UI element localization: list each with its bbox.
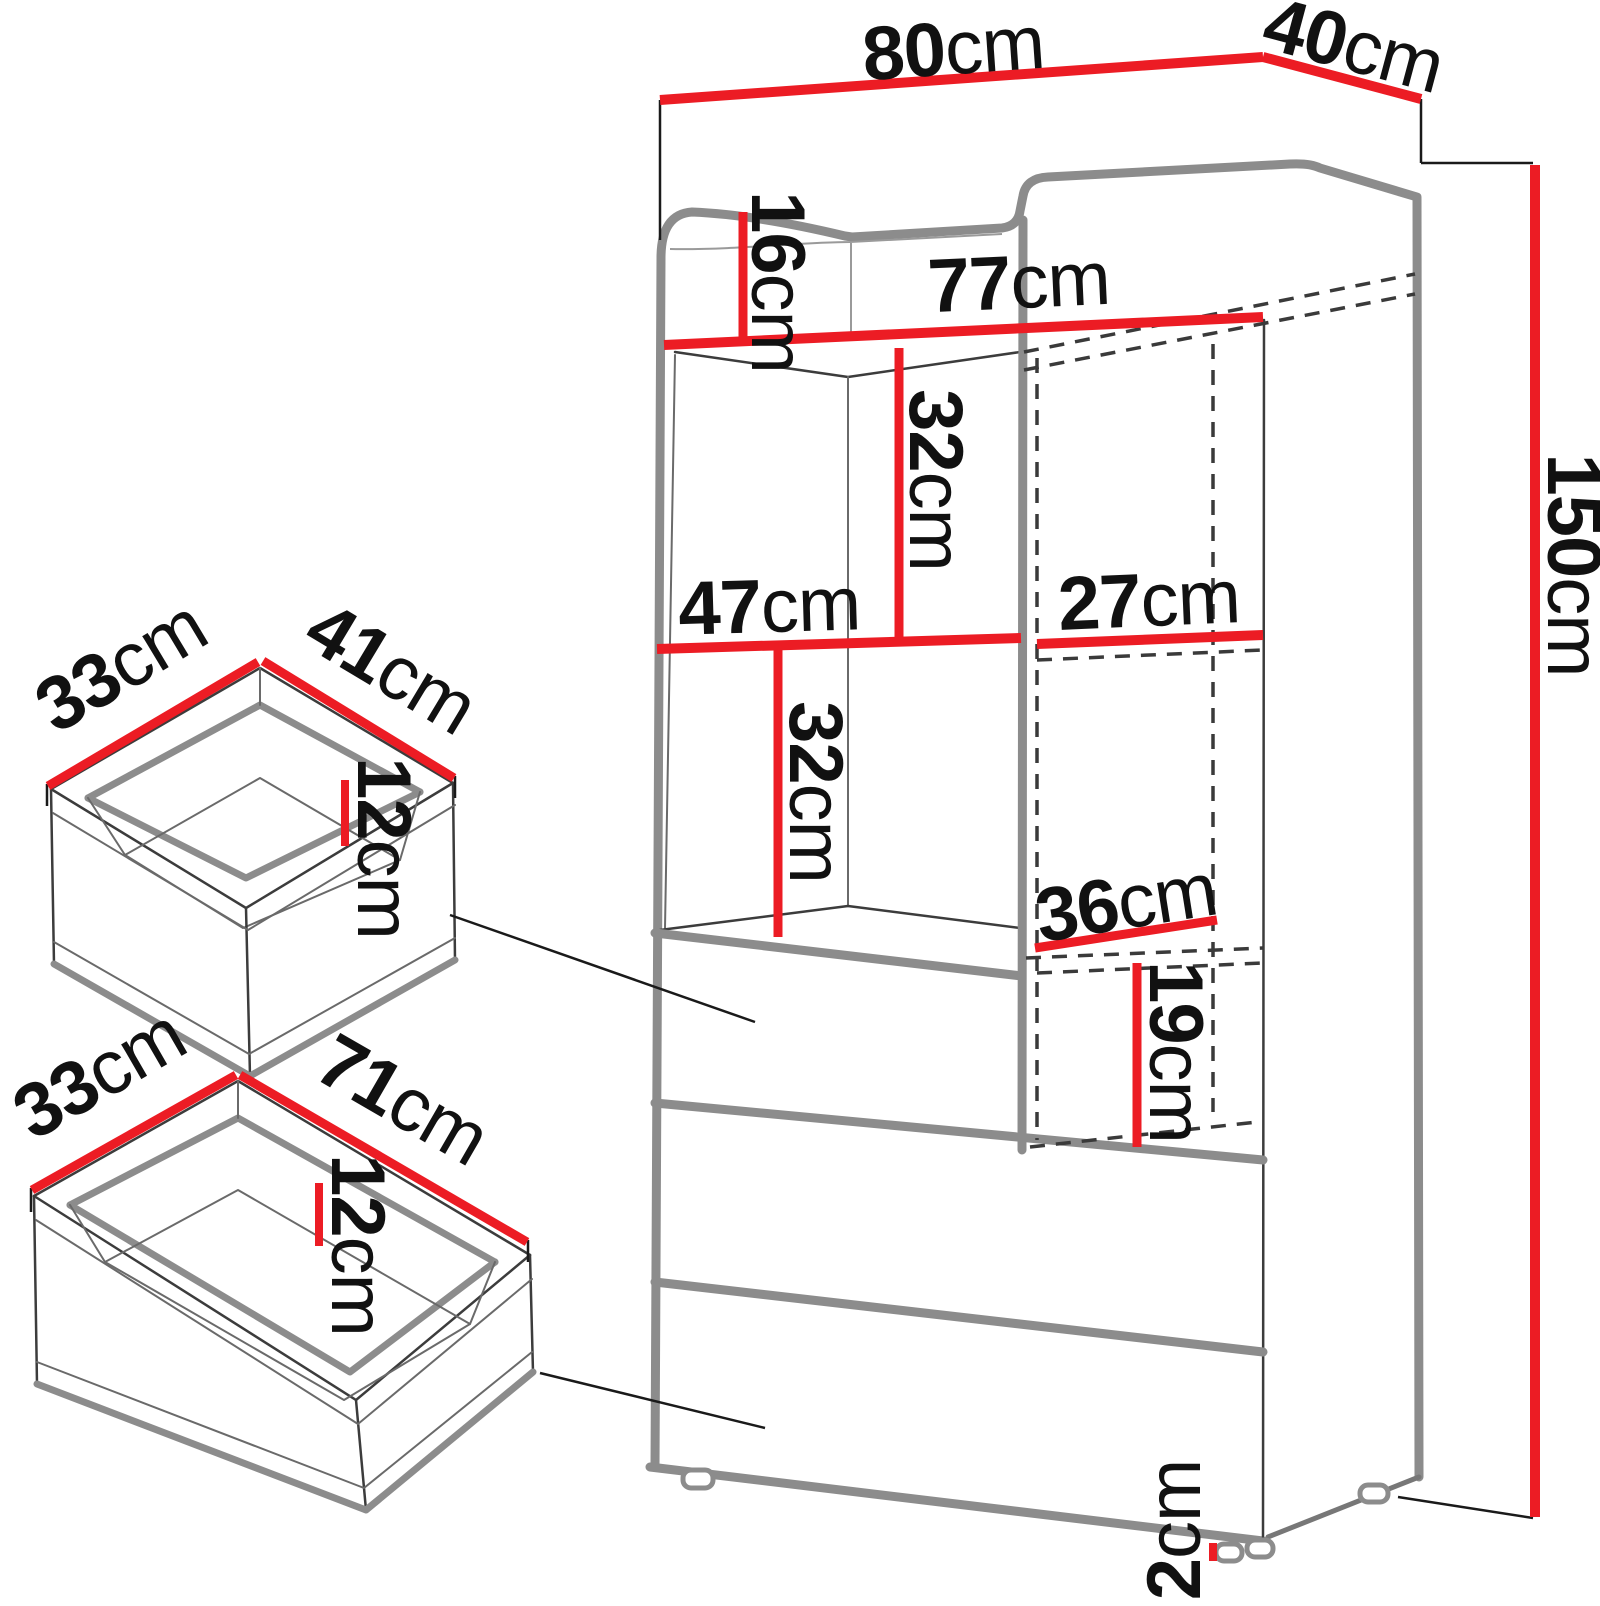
large-drawer-bottom-edges (37, 1372, 533, 1510)
label-left-47: 47cm (677, 561, 861, 651)
diagram-canvas: 80cm 40cm 16cm 77cm 32cm 47cm 27cm 32cm … (0, 0, 1600, 1606)
cabinet-foot-left (683, 1470, 713, 1488)
label-niche-19: 19cm (1133, 961, 1218, 1143)
label-ld-12: 12cm (315, 1154, 400, 1336)
label-rail-16-unit: cm (735, 274, 820, 373)
label-interior-77: 77cm (926, 236, 1112, 329)
interior-ceiling-lines (675, 352, 1020, 377)
label-sd-41: 41cm (291, 585, 491, 752)
extension-bottom-right (1398, 1497, 1533, 1518)
label-height-150-value: 150 (1531, 453, 1600, 577)
label-height-150: 150cm (1531, 453, 1600, 676)
label-foot-2-value: 2 (1132, 1559, 1217, 1600)
label-height-150-unit: cm (1531, 577, 1600, 676)
label-left-47-value: 47 (677, 564, 762, 651)
label-width-80: 80cm (860, 0, 1047, 97)
label-upper-32-value: 32 (893, 389, 978, 472)
label-interior-77-value: 77 (926, 240, 1012, 329)
furniture-dimension-diagram: 80cm 40cm 16cm 77cm 32cm 47cm 27cm 32cm … (0, 0, 1600, 1606)
label-niche-19-value: 19 (1133, 961, 1218, 1044)
label-sd-33: 33cm (21, 583, 221, 750)
label-ld-12-value: 12 (315, 1154, 400, 1237)
large-drawer-floor (105, 1190, 470, 1400)
label-lower-32-value: 32 (773, 701, 858, 784)
label-niche-36-value: 36 (1030, 862, 1125, 959)
hidden-shelf-27 (1037, 650, 1263, 660)
label-depth-40: 40cm (1255, 0, 1453, 110)
drawer-seam-2 (655, 1282, 1263, 1352)
label-rail-16: 16cm (735, 191, 820, 373)
interior-left-wall (665, 355, 675, 928)
dimension-labels: 80cm 40cm 16cm 77cm 32cm 47cm 27cm 32cm … (0, 0, 1600, 1600)
label-niche-36-unit: cm (1111, 847, 1222, 946)
label-lower-32: 32cm (773, 701, 858, 883)
label-right-27-unit: cm (1139, 554, 1242, 643)
label-left-47-unit: cm (760, 561, 862, 649)
label-upper-32-unit: cm (893, 472, 978, 571)
label-ld-12-unit: cm (315, 1237, 400, 1336)
label-depth-40-unit: cm (1335, 2, 1453, 110)
label-rail-16-value: 16 (735, 191, 820, 274)
large-drawer-front-seam-top (36, 1220, 532, 1424)
label-sd-12-value: 12 (341, 757, 426, 840)
label-right-27: 27cm (1056, 554, 1241, 647)
label-width-80-value: 80 (860, 7, 948, 98)
leader-small-drawer (450, 915, 755, 1022)
label-niche-36: 36cm (1030, 847, 1223, 959)
label-right-27-value: 27 (1056, 558, 1142, 647)
label-width-80-unit: cm (942, 0, 1047, 92)
label-sd-12: 12cm (341, 757, 426, 939)
cabinet-foot-right-a (1216, 1544, 1242, 1561)
cabinet-divider (1022, 220, 1023, 1150)
interior-floor-lines (660, 906, 1020, 930)
cabinet-body (650, 164, 1419, 1561)
cabinet-front-right-edge (1263, 320, 1264, 1541)
extension-top-right (1421, 99, 1533, 163)
label-upper-32: 32cm (893, 389, 978, 571)
cabinet-side-bottom-edge (1268, 1477, 1419, 1537)
label-foot-2-unit: cm (1132, 1460, 1217, 1559)
label-interior-77-unit: cm (1008, 236, 1111, 326)
cabinet-foot-back (1360, 1485, 1388, 1502)
label-ld-33: 33cm (0, 992, 199, 1157)
hidden-right-compartment (1024, 274, 1415, 1147)
large-drawer-front-seam-bottom (37, 1352, 532, 1488)
label-lower-32-unit: cm (773, 784, 858, 883)
label-niche-19-unit: cm (1133, 1044, 1218, 1143)
label-sd-12-unit: cm (341, 840, 426, 939)
small-drawer-top-edge (655, 933, 1022, 976)
cabinet-foot-right-b (1247, 1540, 1273, 1557)
label-foot-2: 2cm (1132, 1460, 1217, 1601)
